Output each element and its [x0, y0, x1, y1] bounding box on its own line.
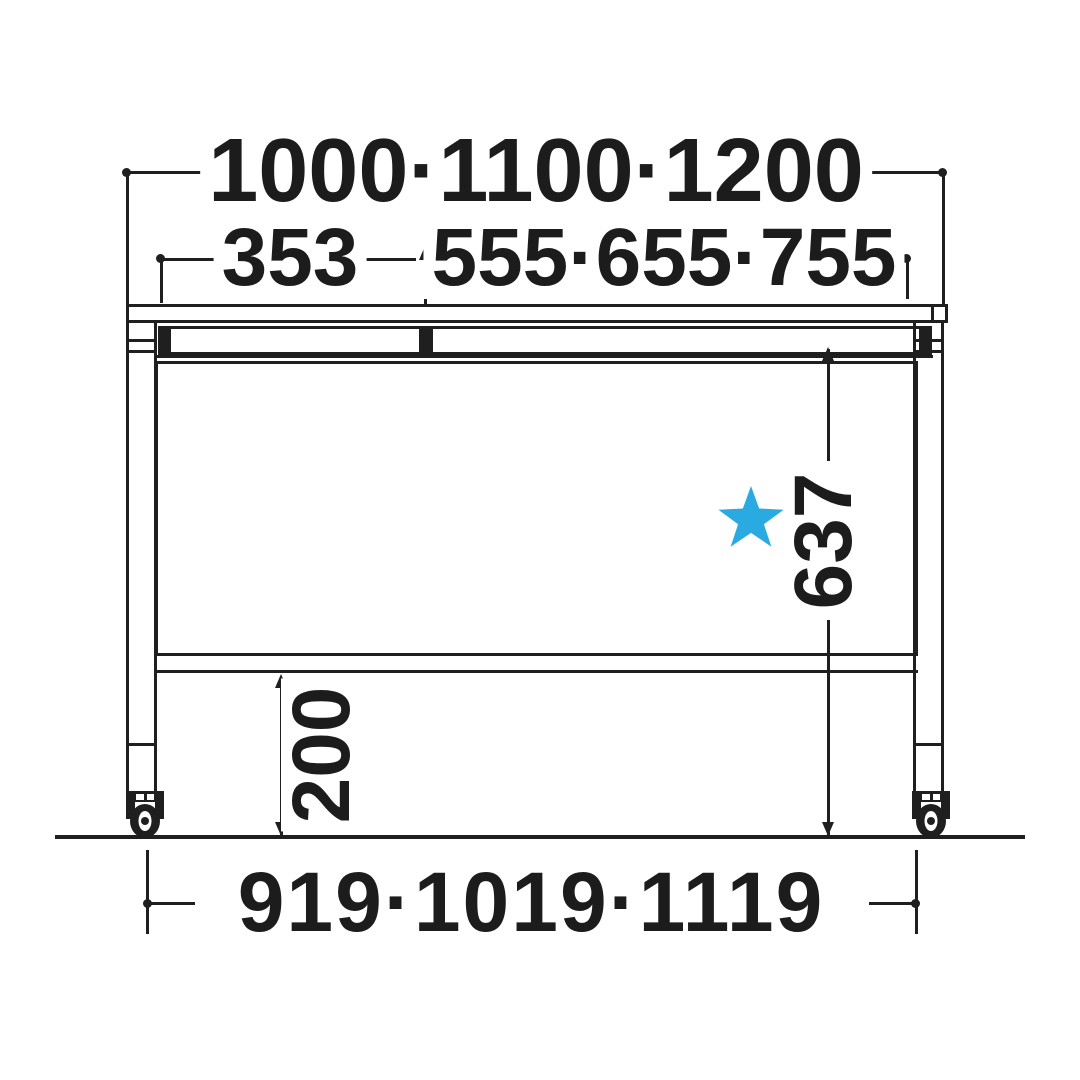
dim-height-arrow-bottom-icon [822, 822, 834, 836]
dim-overall-width-label: 1000·1100·1200 [200, 126, 872, 216]
dim-section-ext-right [906, 257, 909, 299]
dim-section-dot-left [156, 254, 165, 263]
dim-height-line-top [827, 349, 830, 461]
dim-underside-height-label: 637 [783, 465, 865, 618]
tabletop-edge-line [931, 306, 934, 321]
lower-rail-line [155, 670, 918, 673]
dim-height-line-bottom [827, 620, 830, 836]
dim-span-ext-left [146, 850, 149, 934]
dim-height-arrow-top-icon [822, 347, 834, 361]
dim-section-ext-left [160, 257, 163, 303]
dim-right-section-label: 555·655·755 [423, 217, 904, 299]
right-leg-joint-line [913, 743, 944, 746]
dim-overall-line-right [867, 171, 945, 174]
apron-divider [419, 326, 433, 355]
dimension-diagram: 1000·1100·1200 353 555·655·755 637 200 9… [0, 0, 1080, 1080]
left-leg-tick-2 [126, 350, 157, 353]
dim-left-section-line-b [360, 258, 416, 261]
dim-left-section-label: 353 [214, 217, 367, 299]
dim-span-dot-left [143, 899, 152, 908]
dim-overall-dot-left [122, 168, 131, 177]
dim-span-dot-right [911, 899, 920, 908]
dim-bottom-clearance-label: 200 [281, 679, 363, 832]
right-leg-inner-line [913, 321, 916, 796]
left-caster-icon [122, 791, 168, 839]
dim-caster-span-label: 919·1019·1119 [230, 860, 833, 944]
left-leg-tick-1 [126, 339, 157, 342]
right-leg-outer-line [941, 321, 944, 796]
dim-span-line-right [869, 902, 917, 905]
apron-endcap-left [158, 326, 171, 355]
dim-overall-line-left [126, 171, 204, 174]
right-leg-tick-2 [913, 350, 944, 353]
right-leg-tick-1 [913, 339, 944, 342]
dim-overall-ext-right [942, 170, 945, 305]
dim-left-section-line-a [160, 258, 218, 261]
left-leg-outer-line [126, 321, 129, 796]
upper-rail-line [155, 355, 933, 358]
left-leg-joint-line [126, 743, 157, 746]
left-leg-inner-line [154, 321, 157, 796]
apron-rail [158, 326, 932, 355]
right-caster-icon [908, 791, 954, 839]
dim-overall-dot-right [938, 168, 947, 177]
tabletop [126, 304, 948, 323]
dim-span-line-left [147, 902, 195, 905]
ground-line [55, 835, 1025, 839]
dim-overall-ext-left [126, 170, 129, 305]
dim-span-ext-right [915, 850, 918, 934]
